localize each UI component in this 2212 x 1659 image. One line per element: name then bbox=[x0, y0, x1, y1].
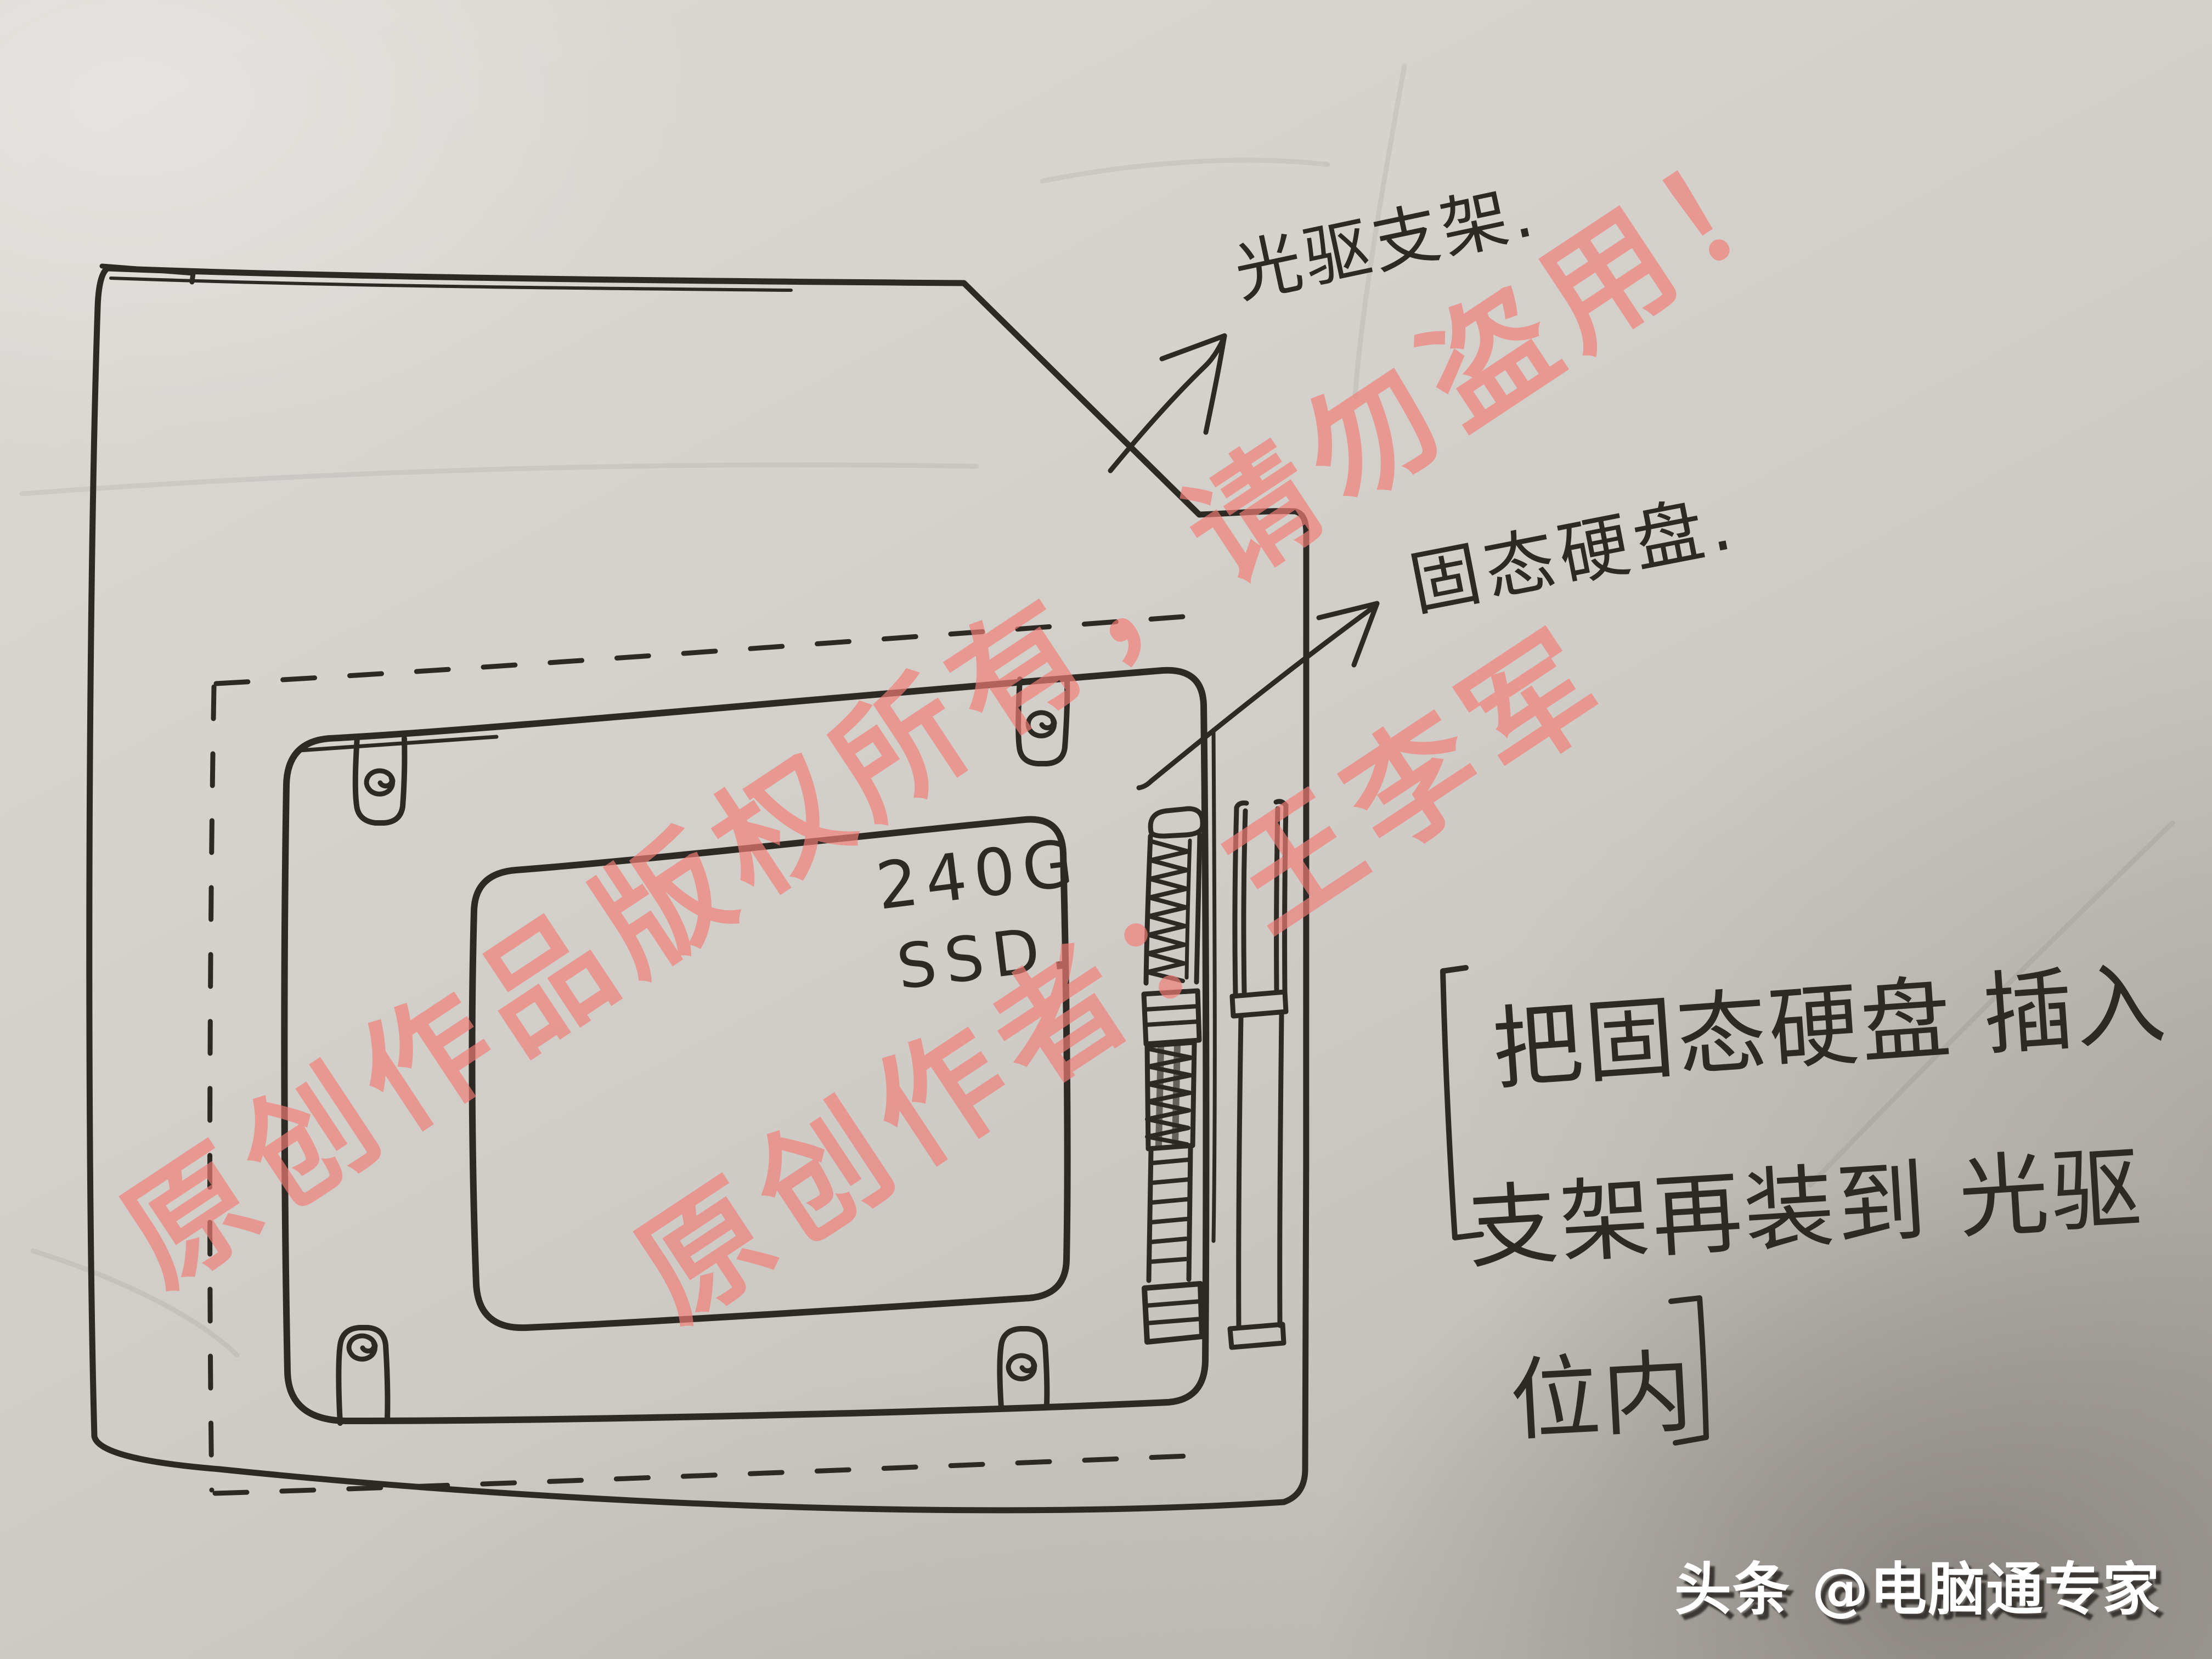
screw-icon bbox=[366, 771, 393, 794]
screw-icon bbox=[349, 1336, 375, 1359]
byline-watermark: 头条 @电脑通专家 bbox=[1674, 1543, 2160, 1626]
screw-tab-top-left bbox=[356, 737, 405, 823]
note-line-3: 位内 bbox=[1506, 1319, 1697, 1458]
ink-strokes bbox=[22, 66, 2172, 1510]
screw-icon bbox=[1008, 1356, 1035, 1379]
screw-tab-bottom-left bbox=[338, 1328, 387, 1423]
paper-background: 光驱支架. 固态硬盘. 240G SSD. 把固态硬盘 插入 支架再装到 光驱 … bbox=[0, 0, 2212, 1659]
connector-hatch bbox=[1147, 1049, 1192, 1144]
caddy-sketch bbox=[0, 0, 2212, 1659]
